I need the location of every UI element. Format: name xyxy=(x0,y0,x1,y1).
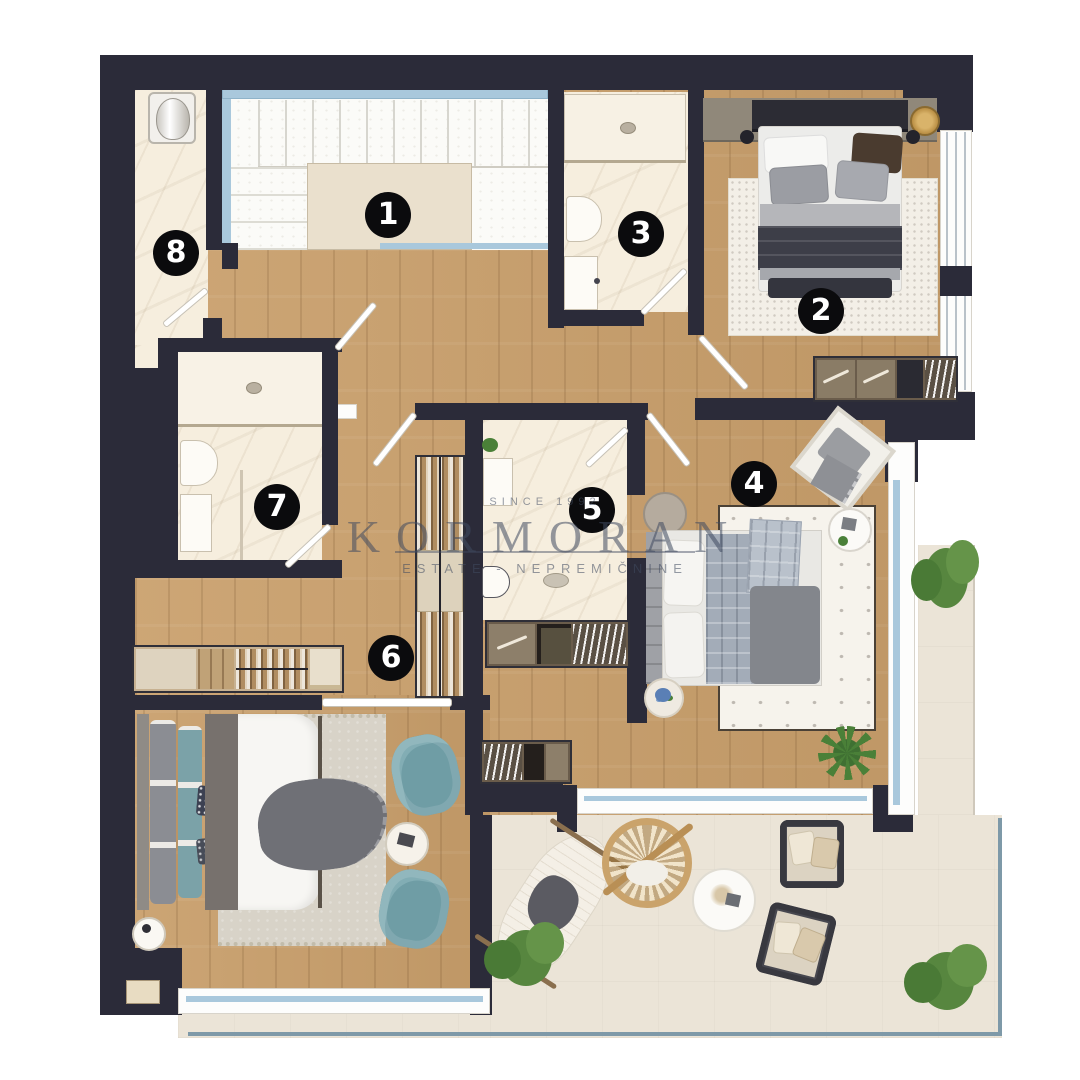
side-table-decor xyxy=(142,924,151,933)
wardrobe-b5-box xyxy=(537,624,571,664)
pouf-1-pillow2 xyxy=(810,836,840,869)
wardrobe-lower-hangers xyxy=(484,744,522,780)
wardrobe-bt-folded xyxy=(310,649,340,689)
terrace-railing-right xyxy=(998,818,1002,1036)
hanging-chair-cushion xyxy=(626,860,668,886)
wall-room7-bottom xyxy=(158,560,342,578)
wall-room5-right xyxy=(627,403,645,495)
window-room2-lines xyxy=(946,132,966,390)
bed-room4-grey-blanket xyxy=(750,586,820,684)
shower-drain-room5 xyxy=(543,573,569,588)
pillow-grey1-room2 xyxy=(769,164,830,206)
wall-room2-room3 xyxy=(688,88,704,335)
wardrobe-bt-drawers xyxy=(198,649,234,689)
wardrobe-room2-panel1 xyxy=(817,360,855,398)
wall-hall-top xyxy=(415,403,648,420)
terrace-railing-bottom xyxy=(188,1032,1000,1036)
bed-room4-plaid-pillow xyxy=(746,519,802,596)
duvet-room2 xyxy=(758,226,902,270)
stair-treads-lower xyxy=(231,166,307,250)
counter-room5 xyxy=(483,458,513,506)
wall-room3-left xyxy=(548,88,564,328)
bush-terrace-left xyxy=(500,930,552,986)
glassdoor-bedroom xyxy=(186,996,483,1002)
bed-room4-pillow1 xyxy=(663,539,705,606)
small-table-plant xyxy=(838,536,848,546)
wardrobe-b5-hangers xyxy=(573,624,626,664)
wall-left xyxy=(100,88,135,962)
bed-master-headboard xyxy=(137,714,149,910)
wall-lamp-right xyxy=(906,130,920,144)
wardrobe-room2-hangers xyxy=(925,360,956,398)
wardrobe-bt-panel xyxy=(136,649,196,689)
glassdoor-terrace xyxy=(584,796,867,801)
bedroom-door-leaf-open xyxy=(322,698,452,707)
terrace-table-napkin xyxy=(725,893,741,908)
vanity-room7 xyxy=(180,494,212,552)
wall-niche xyxy=(126,980,160,1004)
wall-terrace-left xyxy=(483,782,563,812)
wardrobe-lower-box xyxy=(524,744,544,780)
wall-room7-top xyxy=(158,338,342,352)
side-table-bedroom xyxy=(132,917,166,951)
stair-glass-bottom xyxy=(380,243,548,249)
wardrobe-room2-box xyxy=(897,360,923,398)
pillow-grey2-room2 xyxy=(834,160,889,202)
sink-room3 xyxy=(564,256,598,310)
wall-top xyxy=(100,55,973,90)
plant-room5 xyxy=(482,438,498,452)
bed-room4-headboard xyxy=(646,532,662,684)
wall-room8-stairs xyxy=(206,88,222,250)
bed-master-fold xyxy=(205,714,239,910)
window-terrace-door xyxy=(577,788,873,814)
wall-stair-stub xyxy=(222,243,238,269)
wardrobe-bt-rail xyxy=(236,668,308,670)
plant-room4-bottom xyxy=(818,726,876,780)
wardrobe-lower-panel xyxy=(546,744,568,780)
wall-room7-right xyxy=(322,338,338,525)
window-room2-mullion xyxy=(940,266,972,296)
wall-room3-bottom xyxy=(548,310,644,326)
bush-terrace-right xyxy=(920,952,974,1010)
wall-room7-left xyxy=(158,352,178,578)
small-table-tray xyxy=(841,517,857,531)
flowers-blue xyxy=(655,688,671,702)
shower-divider-room7 xyxy=(178,424,322,427)
water-heater-drum xyxy=(156,98,190,140)
shower-divider-room3 xyxy=(564,160,686,163)
wall-bedroom-top xyxy=(110,695,322,710)
stair-treads-upper xyxy=(258,100,548,168)
shower-glass-room7 xyxy=(240,470,243,560)
wardrobe-room2-panel2 xyxy=(857,360,895,398)
bed-master-pillows-grey xyxy=(150,720,176,904)
wall-room7-left-patch xyxy=(135,368,160,578)
glassdoor-room4 xyxy=(893,480,900,805)
stair-landing xyxy=(307,163,472,250)
closet-column-rail xyxy=(439,457,441,696)
bed-room4-pillow2 xyxy=(663,611,705,678)
shower-drain-room3 xyxy=(620,122,636,134)
wall-lamp-left xyxy=(740,130,754,144)
floor-plan: SINCE 1992 KORMORAN ESTATE - NEPREMIČNIN… xyxy=(0,0,1080,1080)
shower-drain-room7 xyxy=(246,382,262,394)
foot-throw-room2 xyxy=(768,278,892,298)
faucet-room3 xyxy=(594,278,600,284)
stair-glass-left xyxy=(222,99,231,249)
bush-right-strip xyxy=(924,548,968,608)
